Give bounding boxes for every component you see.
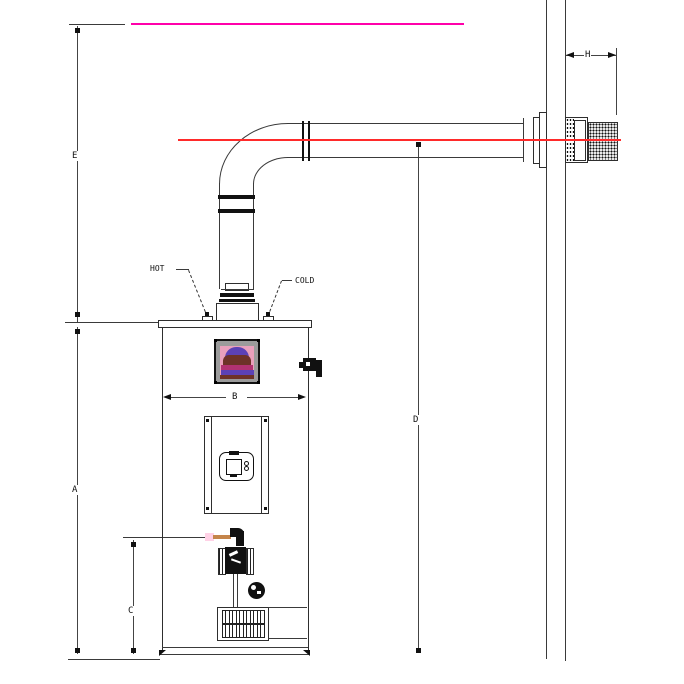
horizontal-pipe-joint-band-1 xyxy=(302,121,304,161)
gas-valve-body xyxy=(225,547,246,574)
dim-a-label: A xyxy=(71,485,78,495)
tank-skirt-line xyxy=(159,654,310,655)
horizontal-pipe-joint-band-2 xyxy=(308,121,310,161)
vent-pipe-horizontal-bottom xyxy=(287,157,524,158)
dim-c-bottom-marker xyxy=(131,648,136,653)
gas-supply-pipe xyxy=(213,535,231,539)
dim-b-label: B xyxy=(231,392,238,402)
dim-e-label: E xyxy=(71,151,78,161)
draft-hood-collar-band-2 xyxy=(219,299,255,302)
relief-valve-pipe xyxy=(316,360,322,377)
hot-water-fitting-cap xyxy=(205,312,209,316)
hot-leader-diagonal xyxy=(188,270,206,312)
dim-h-right-arrow xyxy=(608,52,616,58)
dim-e-line xyxy=(77,26,78,322)
burner-band-bottom-line xyxy=(268,638,307,639)
dim-e-top-marker xyxy=(75,28,80,33)
cold-leader-diagonal xyxy=(269,281,282,312)
red-vent-centerline xyxy=(178,139,621,141)
cold-label: COLD xyxy=(295,276,314,285)
relief-valve-notch xyxy=(306,362,310,366)
dim-h-label: H xyxy=(584,50,591,60)
floor-extension-line xyxy=(68,659,160,660)
dim-b-line-right xyxy=(247,397,301,398)
dim-a-bottom-marker xyxy=(75,648,80,653)
wall-outer-line xyxy=(565,0,566,661)
tank-foot-left xyxy=(159,650,166,656)
gas-control-icon xyxy=(219,452,254,481)
dim-b-line-left xyxy=(168,397,226,398)
tank-bottom-line xyxy=(162,647,308,648)
tank-top-extension-line xyxy=(65,322,158,323)
gas-valve-right-bracket xyxy=(246,548,254,575)
dim-d-bottom-marker xyxy=(416,648,421,653)
dim-d-line xyxy=(418,145,419,653)
tank-foot-right xyxy=(303,650,310,656)
warning-label xyxy=(214,339,260,384)
draft-hood-collar-line xyxy=(221,289,254,290)
wall-inner-line xyxy=(546,0,547,659)
dim-a-top-marker xyxy=(75,329,80,334)
dim-d-label: D xyxy=(412,415,419,425)
vent-pipe-horizontal-top xyxy=(287,123,524,124)
dim-d-top-marker xyxy=(416,142,421,147)
draft-hood-collar-band-1 xyxy=(220,293,254,297)
dim-b-left-arrow xyxy=(163,394,171,400)
warning-label-base-maroon xyxy=(220,375,254,379)
dim-h-extension-line xyxy=(616,48,617,115)
cold-leader-horizontal xyxy=(282,280,292,281)
dim-e-bottom-marker xyxy=(75,312,80,317)
cold-water-fitting-cap xyxy=(266,312,270,316)
vent-pipe-joint-band-1 xyxy=(218,195,255,199)
vent-pipe-joint-band-2 xyxy=(218,209,255,213)
warning-label-dome-maroon xyxy=(223,355,251,365)
gas-elbow-fitting-down xyxy=(236,531,244,546)
dim-c-label: C xyxy=(127,606,134,616)
dim-c-line xyxy=(133,540,134,654)
dim-h-left-arrow xyxy=(566,52,574,58)
water-heater-vent-installation-diagram: E A C D H xyxy=(0,0,684,684)
relief-valve-stub xyxy=(299,362,303,368)
dim-c-top-marker xyxy=(131,542,136,547)
burner-feed-pipe-left xyxy=(233,574,234,607)
dim-b-right-arrow xyxy=(298,394,306,400)
magenta-reference-line xyxy=(131,23,464,25)
louver-row-bottom xyxy=(222,624,265,638)
burner-feed-pipe-right xyxy=(237,574,238,607)
burner-band-top-line xyxy=(268,607,307,608)
drain-valve-knob xyxy=(248,582,265,599)
vent-cap-screen xyxy=(588,122,618,161)
ceiling-extension-line xyxy=(69,24,125,25)
louver-row-top xyxy=(222,610,265,624)
hot-label: HOT xyxy=(150,264,164,273)
